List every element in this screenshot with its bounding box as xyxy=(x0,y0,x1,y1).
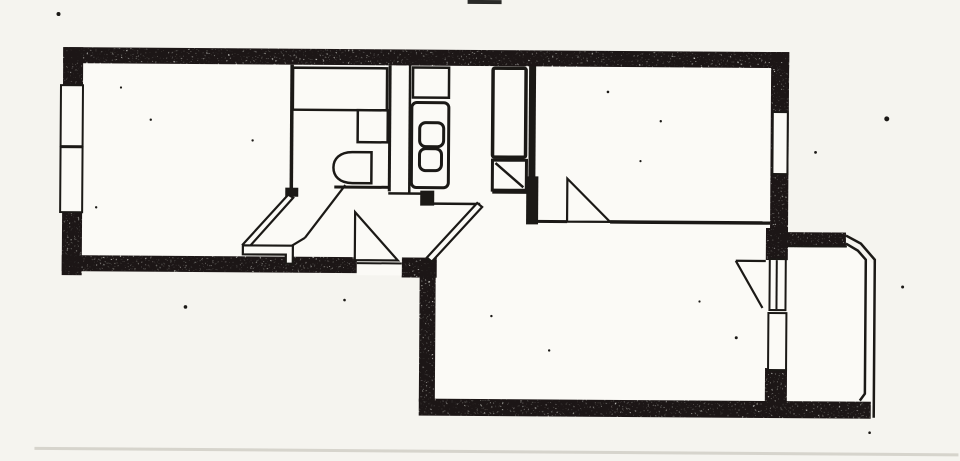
kitchen-wall-right xyxy=(528,64,536,178)
stove-burner-2 xyxy=(419,149,441,171)
scan-speck xyxy=(343,299,346,302)
bathroom-wall-right xyxy=(389,65,390,191)
wall-bottom-left xyxy=(62,255,360,273)
scan-speck xyxy=(639,160,641,162)
kitchen-sink xyxy=(413,68,449,98)
bedroom-wall-south-east xyxy=(610,222,770,223)
page-edge-line xyxy=(34,447,958,456)
wall-lower-room-left xyxy=(419,262,436,402)
bathtub xyxy=(293,68,387,111)
scan-speck xyxy=(548,349,550,351)
floor-lower-room xyxy=(429,214,774,406)
plan-group xyxy=(34,0,960,456)
scan-speck xyxy=(95,206,97,208)
floor-balcony xyxy=(777,240,875,406)
scan-speck xyxy=(251,139,253,141)
scan-speck xyxy=(607,91,610,94)
scanned-floor-plan-page xyxy=(0,0,960,461)
scan-speck xyxy=(56,12,60,16)
scan-speck xyxy=(901,285,904,288)
window-balcony-wall xyxy=(768,313,786,370)
wall-lower-room-bottom xyxy=(419,399,871,419)
stove-burner-1 xyxy=(420,123,444,147)
scan-speck xyxy=(868,431,871,434)
kitchen-wall-stub-left xyxy=(420,191,434,206)
scan-speck xyxy=(660,120,662,122)
wall-balcony-divider-low xyxy=(765,368,787,404)
scan-speck xyxy=(150,118,152,120)
floor-plan-svg xyxy=(0,0,960,461)
scan-speck xyxy=(184,305,188,309)
scan-speck xyxy=(120,86,122,88)
scan-speck xyxy=(735,336,738,339)
scan-speck xyxy=(698,300,700,302)
bathroom-sink xyxy=(358,110,388,142)
fridge-cabinet xyxy=(493,68,527,157)
window-left-1 xyxy=(61,85,83,146)
scan-mark-top xyxy=(468,0,502,4)
toilet xyxy=(333,152,371,183)
scan-speck xyxy=(884,116,889,121)
window-left-2 xyxy=(60,147,82,212)
window-right xyxy=(772,112,787,174)
kitchen-wall-right-stub xyxy=(526,176,538,224)
scan-speck xyxy=(814,151,817,154)
scan-speck xyxy=(490,315,492,317)
